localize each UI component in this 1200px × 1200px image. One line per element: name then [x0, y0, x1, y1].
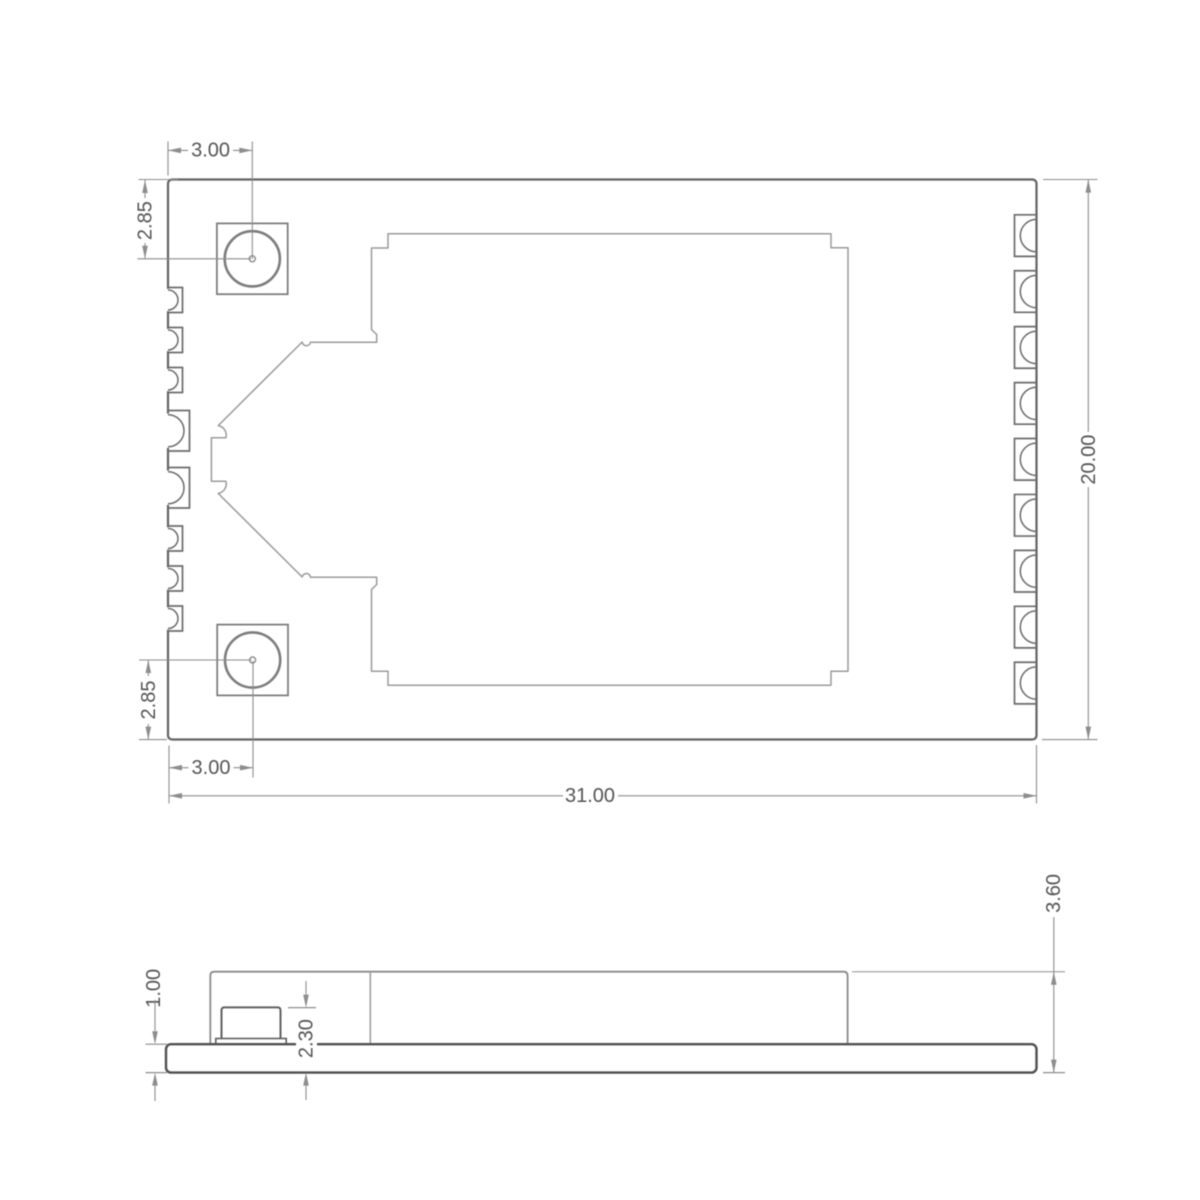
svg-text:2.85: 2.85 — [135, 201, 157, 240]
svg-text:1.00: 1.00 — [143, 969, 165, 1008]
svg-text:31.00: 31.00 — [565, 785, 615, 807]
svg-text:3.00: 3.00 — [191, 140, 230, 162]
svg-text:20.00: 20.00 — [1078, 435, 1100, 485]
svg-text:3.00: 3.00 — [192, 757, 231, 779]
svg-text:3.60: 3.60 — [1043, 874, 1065, 913]
svg-text:2.30: 2.30 — [296, 1019, 318, 1058]
svg-text:2.85: 2.85 — [138, 681, 160, 720]
